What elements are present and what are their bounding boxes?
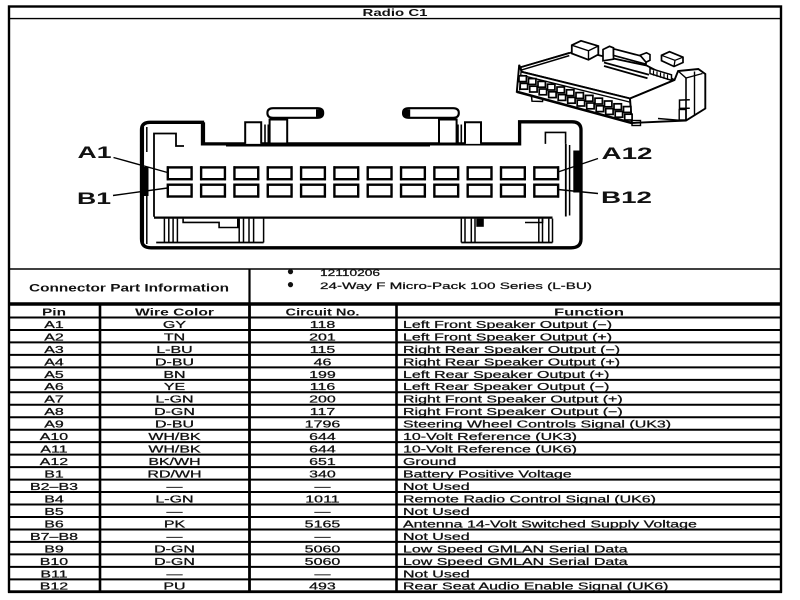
svg-text:PU: PU [163, 582, 185, 593]
svg-text:1796: 1796 [305, 420, 341, 431]
svg-text:A3: A3 [44, 345, 64, 356]
svg-text:—: — [167, 507, 183, 518]
svg-text:D-BU: D-BU [155, 420, 194, 431]
svg-text:D-GN: D-GN [154, 544, 195, 555]
svg-text:Remote Radio Control Signal (U: Remote Radio Control Signal (UK6) [403, 494, 656, 505]
svg-text:Rear Seat Audio Enable Signal: Rear Seat Audio Enable Signal (UK6) [403, 582, 669, 593]
svg-text:5165: 5165 [305, 519, 341, 530]
svg-text:L-BU: L-BU [156, 345, 192, 356]
svg-text:Left Front Speaker Output (+): Left Front Speaker Output (+) [403, 332, 612, 343]
svg-text:A6: A6 [44, 382, 64, 393]
svg-text:5060: 5060 [305, 544, 341, 555]
svg-text:WH/BK: WH/BK [148, 445, 201, 456]
svg-text:B11: B11 [40, 569, 67, 580]
svg-text:—: — [315, 482, 331, 493]
svg-text:Low Speed GMLAN Serial Data: Low Speed GMLAN Serial Data [403, 557, 628, 568]
svg-text:116: 116 [310, 382, 336, 393]
svg-text:A7: A7 [44, 395, 64, 406]
svg-text:RD/WH: RD/WH [147, 470, 201, 481]
svg-text:5060: 5060 [305, 557, 341, 568]
svg-text:—: — [315, 507, 331, 518]
svg-text:Left Rear Speaker Output (−): Left Rear Speaker Output (−) [403, 382, 609, 393]
svg-text:A8: A8 [44, 407, 64, 418]
svg-text:L-GN: L-GN [155, 395, 193, 406]
svg-text:WH/BK: WH/BK [148, 432, 201, 443]
svg-text:10-Volt Reference (UK3): 10-Volt Reference (UK3) [403, 432, 577, 443]
svg-text:1011: 1011 [305, 494, 339, 505]
svg-text:644: 644 [309, 445, 337, 456]
svg-text:Antenna 14-Volt Switched Suppl: Antenna 14-Volt Switched Supply Voltage [403, 519, 698, 530]
svg-text:YE: YE [164, 382, 186, 393]
svg-text:D-GN: D-GN [154, 557, 195, 568]
svg-text:B12: B12 [601, 189, 652, 207]
svg-text:340: 340 [309, 470, 337, 481]
svg-text:TN: TN [164, 332, 185, 343]
svg-text:B5: B5 [44, 507, 64, 518]
svg-text:—: — [167, 532, 183, 543]
svg-text:A5: A5 [44, 370, 64, 381]
svg-text:Not Used: Not Used [403, 482, 470, 493]
svg-text:BK/WH: BK/WH [148, 457, 200, 468]
svg-text:118: 118 [310, 320, 336, 331]
svg-text:B1: B1 [77, 190, 111, 208]
svg-text:Left Front Speaker Output (−): Left Front Speaker Output (−) [403, 320, 612, 331]
svg-text:B12: B12 [40, 582, 68, 593]
svg-text:A11: A11 [40, 445, 67, 456]
svg-text:651: 651 [309, 457, 336, 468]
svg-text:PK: PK [164, 519, 186, 530]
svg-text:115: 115 [310, 345, 336, 356]
svg-text:B2–B3: B2–B3 [30, 482, 79, 493]
svg-text:Not Used: Not Used [403, 569, 470, 580]
svg-text:Function: Function [554, 307, 624, 318]
svg-text:493: 493 [309, 582, 337, 593]
svg-text:201: 201 [309, 332, 336, 343]
svg-text:—: — [167, 569, 183, 580]
svg-text:200: 200 [309, 395, 337, 406]
svg-text:Not Used: Not Used [403, 507, 470, 518]
svg-text:B7–B8: B7–B8 [30, 532, 79, 543]
svg-text:12110206: 12110206 [320, 268, 380, 279]
svg-text:Wire Color: Wire Color [135, 307, 214, 318]
svg-text:A12: A12 [602, 145, 653, 163]
svg-text:Right Front Speaker Output (−): Right Front Speaker Output (−) [403, 407, 623, 418]
svg-text:Right Rear Speaker Output (+): Right Rear Speaker Output (+) [403, 357, 620, 368]
svg-text:Not Used: Not Used [403, 532, 470, 543]
svg-text:—: — [315, 532, 331, 543]
svg-text:A2: A2 [44, 332, 64, 343]
svg-text:199: 199 [309, 370, 336, 381]
svg-text:Pin: Pin [42, 307, 66, 318]
svg-text:—: — [167, 482, 183, 493]
svg-text:24-Way F Micro-Pack 100 Series: 24-Way F Micro-Pack 100 Series (L-BU) [320, 281, 592, 292]
svg-text:GY: GY [163, 320, 187, 331]
svg-text:A10: A10 [40, 432, 69, 443]
svg-text:A1: A1 [44, 320, 64, 331]
svg-text:Radio C1: Radio C1 [363, 7, 428, 19]
svg-text:644: 644 [309, 432, 337, 443]
svg-text:10-Volt Reference (UK6): 10-Volt Reference (UK6) [403, 445, 577, 456]
svg-text:D-GN: D-GN [154, 407, 195, 418]
svg-text:B4: B4 [44, 494, 64, 505]
svg-text:Connector Part Information: Connector Part Information [29, 283, 229, 295]
svg-text:Right Front Speaker Output (+): Right Front Speaker Output (+) [403, 395, 623, 406]
svg-text:D-BU: D-BU [155, 357, 194, 368]
svg-text:B6: B6 [44, 519, 64, 530]
svg-text:B10: B10 [40, 557, 69, 568]
svg-text:Left Rear Speaker Output (+): Left Rear Speaker Output (+) [403, 370, 609, 381]
svg-text:B9: B9 [44, 544, 64, 555]
svg-text:—: — [315, 569, 331, 580]
svg-text:46: 46 [314, 357, 333, 368]
svg-text:Right Rear Speaker Output (−): Right Rear Speaker Output (−) [403, 345, 620, 356]
svg-text:A12: A12 [40, 457, 68, 468]
svg-text:A1: A1 [78, 144, 112, 162]
svg-text:Battery Positive Voltage: Battery Positive Voltage [403, 470, 573, 481]
svg-text:Ground: Ground [403, 457, 456, 468]
svg-text:117: 117 [310, 407, 336, 418]
svg-text:A4: A4 [44, 357, 64, 368]
svg-text:Steering Wheel Controls Signal: Steering Wheel Controls Signal (UK3) [403, 420, 671, 431]
svg-text:A9: A9 [44, 420, 64, 431]
svg-text:Low Speed GMLAN Serial Data: Low Speed GMLAN Serial Data [403, 544, 628, 555]
svg-text:B1: B1 [44, 470, 64, 481]
svg-text:L-GN: L-GN [155, 494, 193, 505]
svg-text:BN: BN [163, 370, 185, 381]
svg-text:Circuit No.: Circuit No. [286, 307, 360, 318]
